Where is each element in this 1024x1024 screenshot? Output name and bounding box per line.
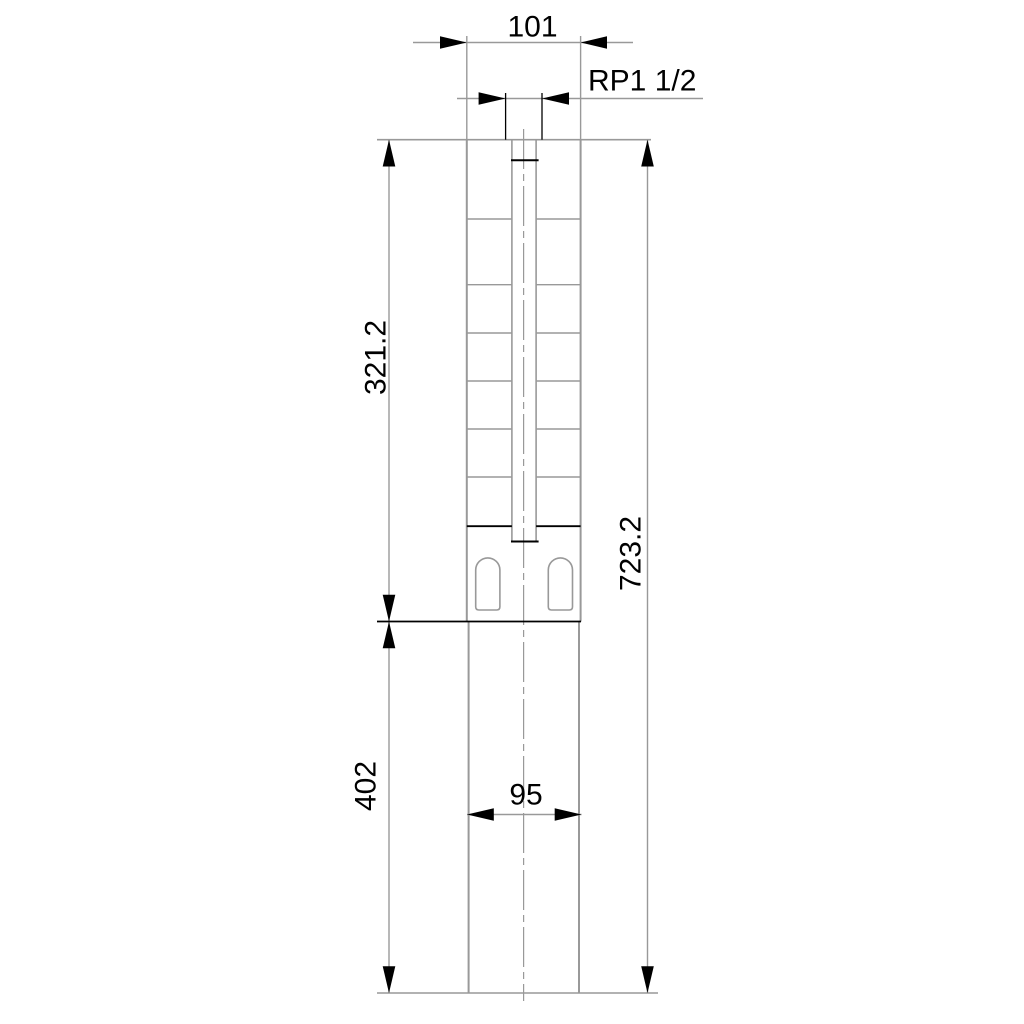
inlet-slot-right [548, 558, 572, 610]
arrow-top-width-right [581, 36, 607, 48]
dimension-labels: 101 RP1 1/2 321.2 723.2 402 95 [350, 11, 697, 812]
dim-label-thread: RP1 1/2 [588, 65, 696, 98]
arrow-lower-width-left [467, 808, 494, 821]
dim-label-upper-height: 321.2 [360, 320, 393, 395]
technical-drawing: 101 RP1 1/2 321.2 723.2 402 95 [0, 0, 1024, 1024]
arrow-top-width-left [440, 36, 467, 48]
arrow-thread-right [542, 92, 569, 104]
arrow-thread-left [479, 92, 506, 104]
arrow-total-height-bottom [641, 966, 654, 993]
dim-label-total-height: 723.2 [615, 516, 648, 591]
arrow-upper-height-bottom [383, 595, 396, 622]
arrow-upper-height-top [383, 140, 396, 167]
arrow-total-height-top [641, 140, 654, 167]
dimension-arrows [383, 36, 654, 993]
inlet-slot-left [476, 558, 500, 610]
gray-linework [377, 36, 703, 1001]
dim-label-lower-height: 402 [350, 761, 383, 811]
dim-label-lower-width: 95 [509, 779, 542, 812]
black-linework [377, 93, 581, 622]
arrow-lower-width-right [555, 808, 582, 821]
arrow-lower-height-bottom [383, 966, 396, 993]
drawing-canvas: 101 RP1 1/2 321.2 723.2 402 95 [0, 0, 1024, 1024]
dim-label-top-width: 101 [507, 11, 557, 44]
arrow-lower-height-top [383, 622, 396, 649]
